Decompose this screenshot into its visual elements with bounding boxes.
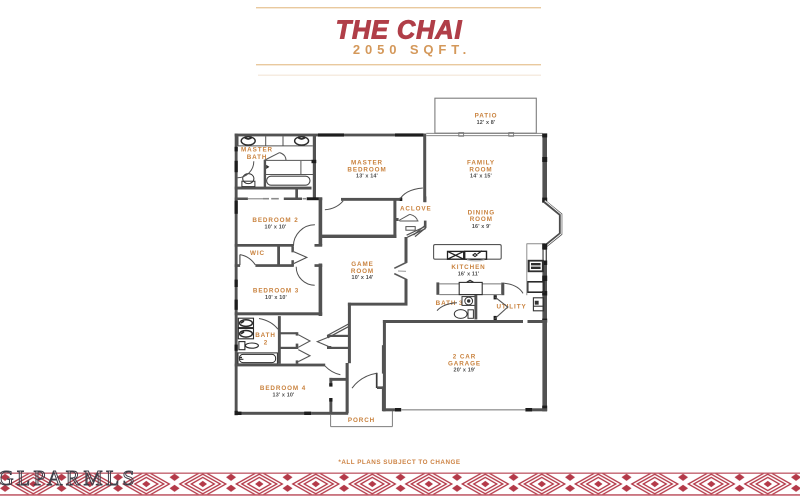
svg-text:ROOM: ROOM [469, 166, 492, 173]
svg-text:2: 2 [264, 339, 268, 346]
svg-text:14' x 15': 14' x 15' [470, 174, 492, 180]
svg-text:10' x 10': 10' x 10' [265, 224, 287, 230]
svg-text:2050 SQFT.: 2050 SQFT. [353, 42, 471, 57]
svg-text:MASTER: MASTER [241, 146, 273, 153]
svg-text:KITCHEN: KITCHEN [451, 264, 485, 271]
svg-text:BEDROOM: BEDROOM [347, 166, 386, 173]
svg-text:10' x 14': 10' x 14' [352, 275, 374, 281]
svg-text:12' x 8': 12' x 8' [477, 120, 496, 126]
svg-text:10' x 10': 10' x 10' [265, 295, 287, 301]
svg-text:WIC: WIC [250, 250, 265, 257]
svg-text:GLPARMLS: GLPARMLS [0, 466, 138, 490]
svg-text:16' x 9': 16' x 9' [472, 224, 491, 230]
svg-text:BATH: BATH [255, 332, 276, 339]
svg-text:GARAGE: GARAGE [448, 360, 481, 367]
svg-text:BEDROOM 4: BEDROOM 4 [260, 385, 306, 392]
svg-text:ROOM: ROOM [351, 268, 374, 275]
svg-text:20' x 19': 20' x 19' [454, 368, 476, 374]
svg-text:ROOM: ROOM [470, 216, 493, 223]
svg-text:PORCH: PORCH [348, 417, 375, 424]
svg-text:13' x 10': 13' x 10' [273, 392, 295, 398]
svg-text:*ALL PLANS SUBJECT TO CHANGE: *ALL PLANS SUBJECT TO CHANGE [338, 459, 460, 466]
svg-text:BEDROOM 2: BEDROOM 2 [252, 217, 298, 224]
svg-text:ACLOVE: ACLOVE [400, 206, 432, 213]
svg-text:13' x 14': 13' x 14' [356, 173, 378, 179]
svg-text:THE CHAI: THE CHAI [336, 17, 463, 45]
svg-text:16' x 11': 16' x 11' [458, 271, 480, 277]
svg-text:UTILITY: UTILITY [496, 303, 526, 310]
svg-text:PATIO: PATIO [475, 113, 498, 120]
svg-text:BEDROOM 3: BEDROOM 3 [253, 288, 299, 295]
